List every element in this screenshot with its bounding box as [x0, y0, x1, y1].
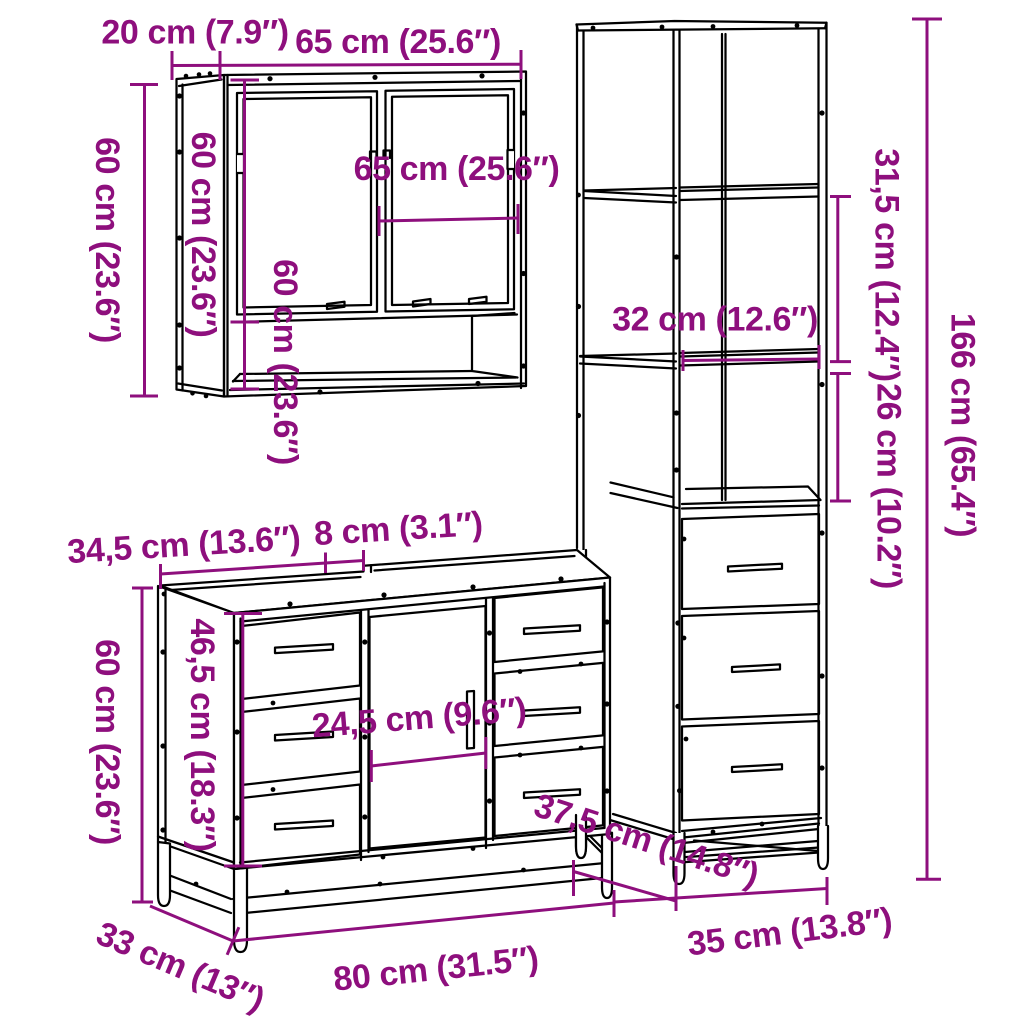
svg-text:65 cm (25.6″): 65 cm (25.6″)	[354, 150, 560, 188]
svg-text:26 cm (10.2″): 26 cm (10.2″)	[870, 383, 908, 589]
svg-text:46,5 cm (18.3″): 46,5 cm (18.3″)	[183, 618, 221, 851]
svg-text:60 cm (23.6″): 60 cm (23.6″)	[88, 137, 126, 343]
svg-text:60 cm (23.6″): 60 cm (23.6″)	[266, 259, 304, 465]
svg-text:166 cm (65.4″): 166 cm (65.4″)	[944, 313, 982, 537]
svg-text:60 cm (23.6″): 60 cm (23.6″)	[88, 639, 126, 845]
svg-text:31,5 cm (12.4″): 31,5 cm (12.4″)	[868, 148, 906, 381]
svg-text:20 cm (7.9″): 20 cm (7.9″)	[101, 13, 288, 51]
svg-text:60 cm (23.6″): 60 cm (23.6″)	[184, 132, 222, 338]
svg-text:32 cm (12.6″): 32 cm (12.6″)	[612, 301, 818, 339]
svg-text:65 cm (25.6″): 65 cm (25.6″)	[295, 23, 501, 61]
